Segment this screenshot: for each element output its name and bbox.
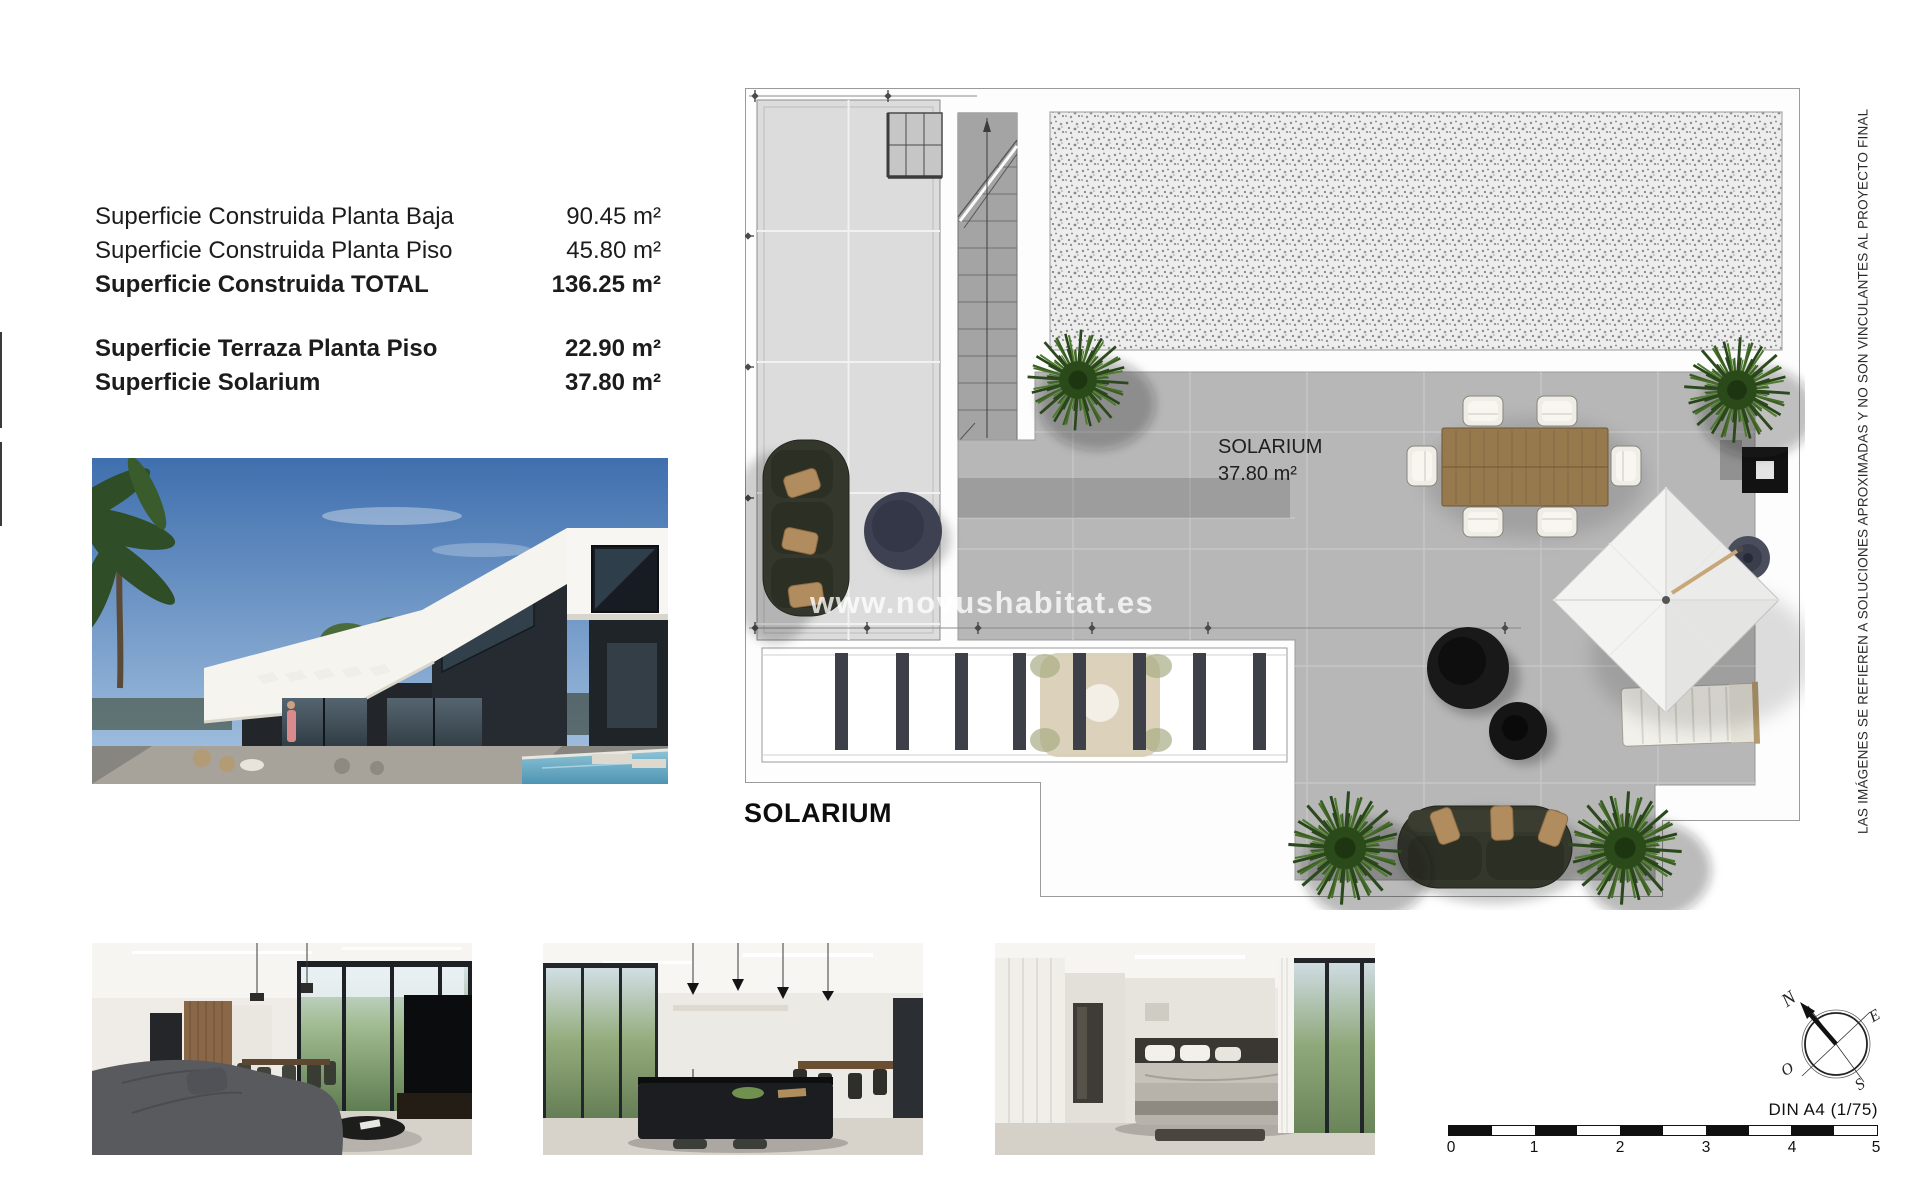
plan-heading: SOLARIUM	[744, 798, 892, 829]
scale-title: DIN A4 (1/75)	[1448, 1100, 1878, 1120]
interior-photo-bedroom	[995, 943, 1375, 1155]
interior-photo-kitchen	[543, 943, 923, 1155]
scale-tick: 5	[1872, 1139, 1881, 1157]
table-row: Superficie Construida Planta Piso 45.80 …	[95, 234, 661, 268]
floor-plan	[745, 88, 1805, 910]
surface-areas-table: Superficie Construida Planta Baja 90.45 …	[95, 200, 661, 400]
watermark: www.novushabitat.es	[810, 585, 1154, 621]
page-edge-line	[0, 442, 2, 526]
page-edge-line	[0, 332, 2, 428]
compass-icon: N E O S	[1768, 972, 1903, 1107]
room-label: SOLARIUM 37.80 m²	[1218, 434, 1322, 488]
interior-photo-living	[92, 943, 472, 1155]
scale-tick: 0	[1447, 1139, 1456, 1157]
staircase	[958, 113, 1017, 442]
area-value: 45.80 m²	[566, 234, 661, 268]
compass-rose: N E O S	[1768, 972, 1903, 1107]
scale-tick: 3	[1702, 1139, 1711, 1157]
scale-tick: 2	[1616, 1139, 1625, 1157]
pergola	[762, 648, 1287, 762]
table-row: Superficie Terraza Planta Piso 22.90 m²	[95, 332, 661, 366]
skylight	[888, 113, 942, 177]
room-name: SOLARIUM	[1218, 434, 1322, 461]
area-value: 37.80 m²	[565, 366, 661, 400]
scale-tick: 4	[1788, 1139, 1797, 1157]
compass-o: O	[1778, 1059, 1797, 1080]
compass-n: N	[1777, 986, 1801, 1012]
spacer	[95, 302, 661, 332]
villa-exterior-photo	[92, 458, 668, 784]
villa-exterior-render	[92, 458, 668, 784]
area-label: Superficie Construida Planta Baja	[95, 200, 454, 234]
compass-s: S	[1852, 1075, 1868, 1094]
gravel-roof	[1050, 112, 1782, 350]
table-row: Superficie Construida Planta Baja 90.45 …	[95, 200, 661, 234]
table-row-total: Superficie Construida TOTAL 136.25 m²	[95, 268, 661, 302]
area-label: Superficie Construida Planta Piso	[95, 234, 453, 268]
kitchen-render	[543, 943, 923, 1155]
scale-tick: 1	[1530, 1139, 1539, 1157]
solarium-plan-drawing	[745, 88, 1805, 910]
scale-bar-segments	[1448, 1125, 1878, 1136]
round-pouf-large	[1427, 627, 1509, 709]
brochure-page: Superficie Construida Planta Baja 90.45 …	[0, 0, 1920, 1200]
area-value: 136.25 m²	[552, 268, 661, 302]
area-label: Superficie Terraza Planta Piso	[95, 332, 437, 366]
area-label: Superficie Construida TOTAL	[95, 268, 429, 302]
living-room-render	[92, 943, 472, 1155]
area-value: 22.90 m²	[565, 332, 661, 366]
round-pouf-small	[1489, 702, 1547, 760]
area-label: Superficie Solarium	[95, 366, 320, 400]
round-pouf-slate	[864, 492, 942, 570]
bedroom-render	[995, 943, 1375, 1155]
compass-e: E	[1865, 1006, 1883, 1026]
table-row: Superficie Solarium 37.80 m²	[95, 366, 661, 400]
disclaimer-text: LAS IMÁGENES SE REFIEREN A SOLUCIONES AP…	[1850, 90, 1876, 834]
room-area: 37.80 m²	[1218, 461, 1322, 488]
area-value: 90.45 m²	[566, 200, 661, 234]
scale-tick-labels: 0 1 2 3 4 5	[1448, 1139, 1878, 1163]
scale-bar: DIN A4 (1/75) 0 1 2 3 4 5	[1448, 1100, 1878, 1163]
